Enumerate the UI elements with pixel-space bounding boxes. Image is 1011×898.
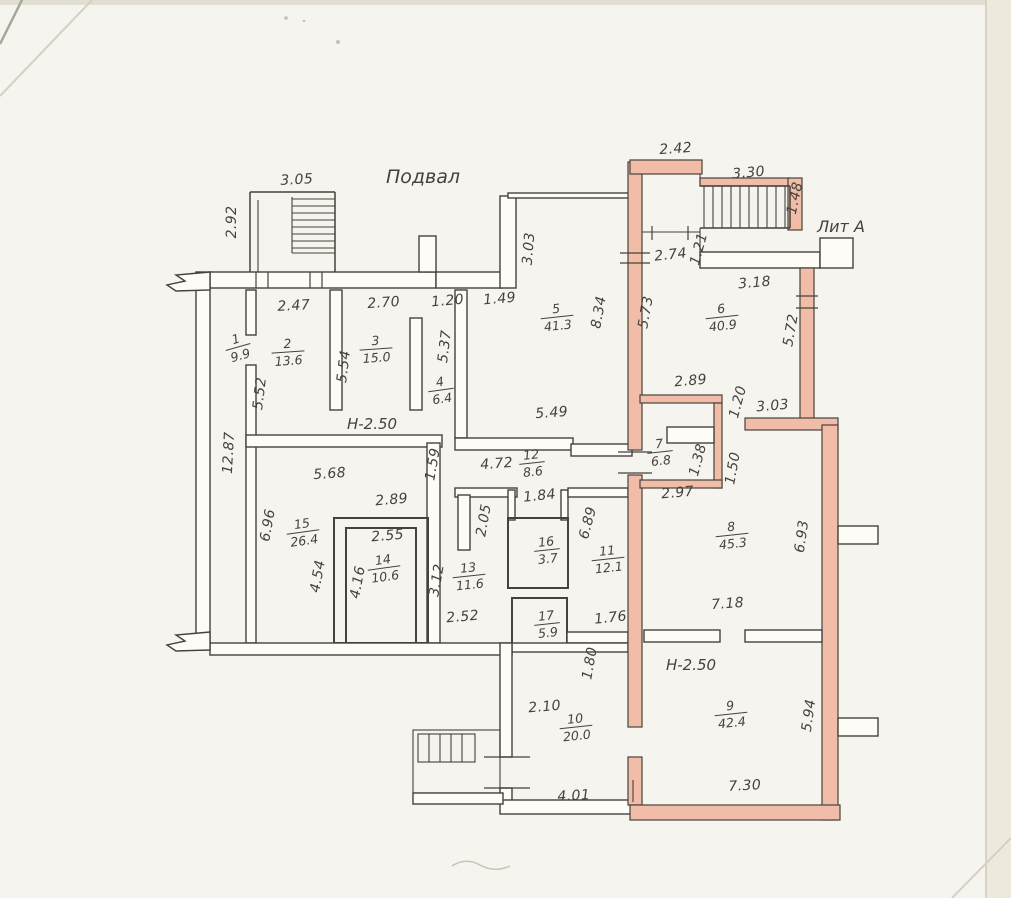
- room-area: 12.1: [594, 559, 623, 577]
- wall-segment: [822, 425, 838, 820]
- room-area: 42.4: [717, 714, 746, 732]
- wall-segment: [419, 236, 436, 272]
- labels: 19.9213.6315.046.4541.3640.976.8845.3942…: [220, 140, 819, 805]
- scanned-floor-plan: Подвал Лит А 19.9213.6315.046.4541.3640.…: [0, 0, 1011, 898]
- room-number: 17: [537, 607, 554, 624]
- room-area: 40.9: [708, 317, 737, 335]
- room-number: 10: [566, 710, 583, 727]
- room-area: 45.3: [718, 535, 747, 553]
- dimension-label: 2.47: [277, 297, 311, 315]
- wall-segment: [838, 718, 878, 736]
- dimension-label: 4.54: [307, 559, 328, 594]
- wall-segment: [571, 444, 632, 456]
- dimension-label: 1.20: [431, 292, 465, 311]
- wall-segment: [0, 0, 1011, 5]
- dimension-label: 5.72: [780, 313, 801, 348]
- wall-break-icon: [167, 272, 210, 291]
- dimension-label: 1.38: [686, 442, 710, 478]
- wall-segment: [512, 643, 628, 652]
- room-label: 541.3: [539, 299, 575, 334]
- wall-segment: [820, 238, 853, 268]
- room-area: 6.8: [650, 452, 671, 469]
- dimension-label: 5.52: [250, 376, 270, 410]
- wall-segment: [838, 526, 878, 544]
- dimension-label: 2.52: [446, 608, 480, 627]
- dimension-label: 6.89: [576, 505, 600, 541]
- room-label: 1020.0: [558, 709, 594, 744]
- dimension-label: 2.05: [473, 503, 494, 538]
- room-number: 3: [371, 333, 380, 349]
- wall-segment: [436, 272, 502, 288]
- wall-segment: [458, 495, 470, 550]
- room-label: 46.4: [426, 372, 456, 407]
- staircase-bottom-left: [418, 734, 475, 762]
- wall-segment: [508, 193, 634, 198]
- wall-segment: [0, 0, 22, 44]
- wall-segment: [410, 318, 422, 410]
- plan-title: Подвал: [386, 166, 460, 188]
- room-label: 1526.4: [285, 514, 322, 550]
- room-number: 16: [537, 533, 554, 550]
- room-label: 315.0: [359, 332, 394, 366]
- room-area: 6.4: [431, 390, 453, 408]
- dimension-label: 2.42: [659, 140, 693, 158]
- room-label: 163.7: [533, 533, 562, 568]
- dimension-label: 2.92: [224, 206, 240, 239]
- room-label: 1112.1: [590, 541, 626, 576]
- room-number: 4: [435, 374, 445, 390]
- wall-segment: [986, 0, 1011, 898]
- dimension-label: 6.96: [257, 508, 278, 543]
- room-number: 11: [598, 542, 615, 559]
- dimension-label: 1.76: [593, 608, 627, 627]
- dimension-label: 5.49: [535, 404, 569, 422]
- dimension-label: 2.70: [367, 294, 401, 312]
- wall-segment: [630, 805, 840, 820]
- ceiling-height-note: Н-2.50: [666, 656, 716, 674]
- dimension-label: 7.18: [711, 595, 745, 613]
- room-area: 8.6: [522, 463, 543, 480]
- wall-segment: [500, 196, 516, 288]
- dimension-label: 5.94: [799, 698, 819, 733]
- dimension-label: 3.05: [280, 171, 314, 189]
- dimension-label: 8.34: [588, 295, 609, 330]
- room-area: 10.6: [370, 567, 400, 586]
- room-area: 3.7: [537, 550, 558, 567]
- room-number: 9: [725, 698, 735, 714]
- floor-plan-svg: Подвал Лит А 19.9213.6315.046.4541.3640.…: [0, 0, 1011, 898]
- dimension-label: 1.50: [722, 451, 743, 486]
- room-area: 5.9: [537, 624, 558, 641]
- wall-segment: [455, 438, 573, 450]
- dimension-label: 3.03: [520, 232, 539, 266]
- dimension-label: 1.20: [726, 384, 750, 420]
- wall-segment: [500, 643, 512, 757]
- wall-segment: [210, 643, 512, 655]
- dimension-label: 4.01: [557, 787, 591, 805]
- wall-segment: [628, 757, 642, 805]
- wall-segment: [714, 403, 722, 488]
- dimension-label: 2.55: [371, 527, 405, 546]
- ink-speck: [303, 20, 305, 22]
- staircase-top-left: [250, 192, 335, 272]
- room-number: 2: [283, 336, 292, 352]
- wall-segment: [667, 427, 714, 443]
- dimension-label: 3.30: [732, 164, 766, 183]
- wall-segment: [210, 272, 436, 288]
- room-area: 11.6: [455, 576, 484, 594]
- room-label: 1410.6: [366, 550, 403, 586]
- wall-segment: [640, 395, 722, 403]
- wall-segment: [196, 272, 210, 650]
- dimension-label: 3.18: [738, 274, 772, 293]
- room-area: 13.6: [274, 352, 303, 369]
- room-label: 175.9: [533, 607, 562, 642]
- dimension-label: 5.68: [313, 465, 347, 483]
- room-area: 15.0: [362, 349, 391, 366]
- wall-segment: [630, 160, 702, 174]
- dimension-label: 4.72: [480, 455, 514, 473]
- building-letter-label: Лит А: [816, 217, 865, 236]
- dimension-label: 2.10: [528, 698, 562, 717]
- wall-segment: [700, 252, 820, 268]
- dimension-label: 2.89: [674, 372, 708, 391]
- wall-segment: [745, 630, 822, 642]
- wall-segment: [452, 861, 510, 869]
- room-number: 14: [374, 551, 392, 568]
- room-area: 41.3: [543, 317, 572, 335]
- dimension-label: 12.87: [220, 431, 238, 474]
- wall-segment: [628, 475, 642, 727]
- room-label: 1311.6: [451, 558, 487, 593]
- wall-segment: [644, 630, 720, 642]
- room-number: 7: [654, 436, 664, 452]
- wall-break-icon: [167, 632, 210, 651]
- room-label: 213.6: [271, 335, 306, 369]
- dimension-label: 2.89: [375, 491, 409, 510]
- wall-segment: [567, 632, 628, 643]
- room-area: 26.4: [289, 531, 319, 550]
- ink-speck: [336, 40, 340, 44]
- room-number: 8: [726, 519, 736, 535]
- room-number: 6: [716, 301, 726, 317]
- wall-segment: [800, 268, 814, 425]
- ceiling-height-note: Н-2.50: [347, 415, 397, 433]
- dimension-label: 1.49: [483, 290, 517, 309]
- dimension-label: 3.03: [756, 397, 790, 416]
- wall-segment: [413, 793, 503, 804]
- dimension-label: 6.93: [792, 519, 812, 554]
- wall-segment: [508, 490, 515, 520]
- wall-segment: [246, 435, 442, 447]
- dimension-label: 2.74: [653, 245, 687, 264]
- dimension-label: 7.30: [728, 777, 762, 795]
- room-number: 15: [293, 515, 311, 532]
- room-area: 20.0: [562, 727, 591, 745]
- wall-segment: [418, 734, 475, 762]
- wall-segment: [455, 290, 467, 438]
- room-number: 5: [551, 301, 561, 317]
- room-label: 845.3: [714, 517, 750, 552]
- dimension-label: 5.37: [435, 329, 455, 363]
- room-label: 942.4: [713, 696, 749, 731]
- wall-segment: [246, 290, 256, 335]
- dimension-label: 5.54: [334, 349, 354, 383]
- dimension-label: 4.16: [347, 565, 368, 600]
- ink-speck: [284, 16, 288, 20]
- room-number: 1: [230, 331, 242, 348]
- dimension-label: 2.97: [661, 484, 695, 503]
- room-label: 128.6: [518, 446, 547, 481]
- dimension-label: 1.84: [522, 486, 556, 505]
- wall-segment: [561, 490, 568, 520]
- room-number: 12: [522, 446, 539, 463]
- wall-segment: [568, 488, 628, 497]
- room-label: 640.9: [704, 299, 740, 334]
- room-number: 13: [459, 559, 476, 576]
